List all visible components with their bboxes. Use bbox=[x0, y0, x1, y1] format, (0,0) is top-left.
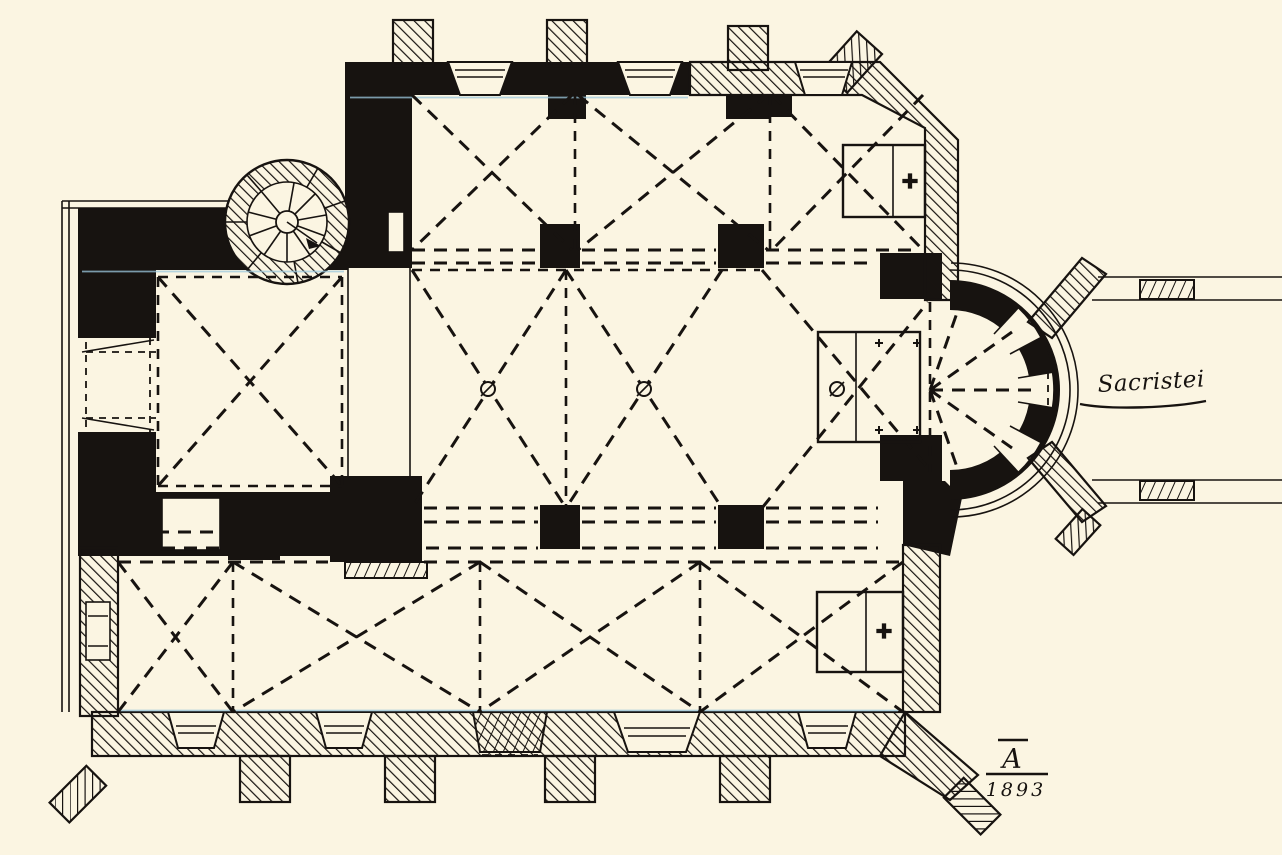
vault-bosses bbox=[481, 382, 844, 396]
sacristy-south-wall-hatch bbox=[1140, 481, 1194, 500]
church-floor-plan: Sacristei A 1893 bbox=[0, 0, 1282, 855]
south-window bbox=[614, 712, 700, 752]
black-masonry-walls bbox=[78, 62, 962, 562]
south-portal bbox=[473, 712, 547, 752]
altar-corner-cross-icon bbox=[875, 426, 883, 434]
consecration-cross-icon bbox=[876, 623, 891, 638]
apse-axial-window bbox=[1036, 375, 1037, 405]
tower-south-doorway bbox=[162, 498, 220, 550]
north-arcade-pier bbox=[718, 224, 764, 268]
south-arcade-pier bbox=[540, 505, 580, 549]
southwest-corner-buttress bbox=[50, 766, 107, 823]
north-window bbox=[795, 62, 852, 95]
sacristy-label: Sacristei bbox=[1097, 366, 1205, 398]
east-chapel-wall-hatched bbox=[903, 545, 940, 712]
plan-year: 1893 bbox=[986, 779, 1046, 801]
tower-vault-bay bbox=[158, 277, 342, 486]
north-window bbox=[448, 62, 512, 95]
south-buttress bbox=[720, 756, 770, 802]
consecration-cross-icon bbox=[902, 173, 917, 188]
floor-plan-drawing: Sacristei A 1893 bbox=[0, 0, 1282, 855]
sacristy-north-wall-hatch bbox=[1140, 280, 1194, 299]
sacristy-label-underline bbox=[1080, 401, 1206, 408]
south-buttress bbox=[240, 756, 290, 802]
west-wall-upper bbox=[78, 208, 156, 338]
nave-vaults bbox=[348, 268, 878, 522]
artist-monogram: A bbox=[999, 744, 1022, 775]
artist-signature: A 1893 bbox=[986, 740, 1048, 801]
wall-openings bbox=[78, 62, 856, 755]
south-window bbox=[168, 712, 224, 748]
south-buttress bbox=[545, 756, 595, 802]
west-aisle-window bbox=[86, 602, 110, 660]
north-buttress bbox=[393, 20, 433, 66]
north-window bbox=[618, 62, 682, 95]
north-buttress bbox=[547, 20, 587, 66]
altar-steps bbox=[345, 562, 427, 578]
tower-south-pier bbox=[228, 492, 280, 560]
altar-corner-cross-icon bbox=[875, 339, 883, 347]
sacristy-buttress bbox=[1056, 509, 1101, 555]
south-side-altar bbox=[817, 592, 903, 672]
south-arcade-pier bbox=[718, 505, 764, 549]
spiral-stair-turret bbox=[225, 160, 349, 284]
south-buttress bbox=[385, 756, 435, 802]
south-window bbox=[798, 712, 856, 748]
north-aisle-vaults bbox=[412, 95, 923, 263]
stair-doorway bbox=[388, 212, 404, 252]
south-window bbox=[316, 712, 372, 748]
